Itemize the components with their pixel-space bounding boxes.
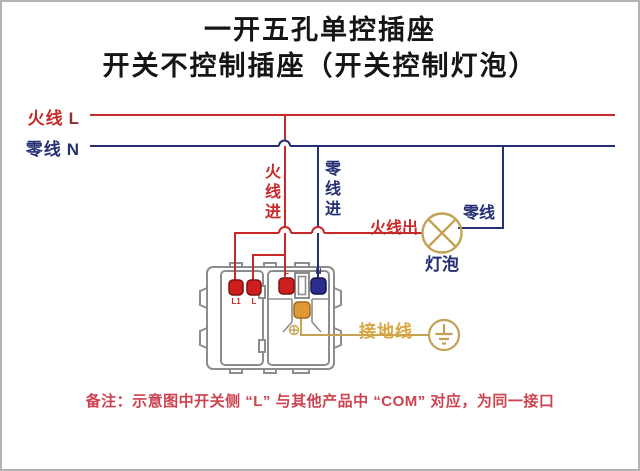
- terminal-ground: [294, 302, 310, 318]
- device-wing: [334, 288, 341, 308]
- ground-symbol-icon: [429, 320, 459, 350]
- terminal-socket-l: [279, 278, 294, 294]
- earth-mark-icon: [290, 326, 299, 335]
- neutral-letter: N: [67, 140, 80, 159]
- terminal-label-socket-n: N: [311, 268, 326, 276]
- note-text: 备注：示意图中开关侧 “L” 与其他产品中 “COM” 对应，为同一接口: [2, 390, 638, 411]
- switch-module-clip: [259, 340, 265, 352]
- terminal-label-l-com: L: [247, 298, 261, 306]
- neutral-in-label: 零线进: [322, 160, 338, 220]
- wire-hop: [279, 141, 290, 146]
- device-wing: [334, 328, 341, 348]
- wire-hop: [312, 227, 324, 233]
- live-in-label: 火线进: [262, 163, 278, 223]
- terminal-label-socket-l: L: [279, 268, 294, 276]
- live-out-label: 火线出: [370, 214, 418, 238]
- lamp-icon: [423, 214, 462, 253]
- terminal-l-com: [247, 280, 261, 295]
- ground-label: 接地线: [359, 317, 413, 342]
- lamp-neutral-label: 零线: [463, 199, 495, 223]
- wiring-diagram: 一开五孔单控插座 开关不控制插座（开关控制灯泡）: [0, 0, 640, 471]
- neutral-supply-label: 零线N: [20, 135, 80, 160]
- terminal-l1: [229, 280, 243, 295]
- live-letter: L: [69, 109, 80, 128]
- wire-hop: [279, 227, 291, 233]
- neutral-name: 零线: [26, 140, 62, 159]
- live-supply-label: 火线L: [20, 104, 80, 129]
- terminal-label-l1: L1: [229, 298, 243, 306]
- terminal-socket-n: [311, 278, 326, 294]
- device-wing: [200, 328, 207, 348]
- device-wing: [200, 288, 207, 308]
- live-name: 火线: [28, 109, 64, 128]
- lamp-label: 灯泡: [418, 250, 466, 275]
